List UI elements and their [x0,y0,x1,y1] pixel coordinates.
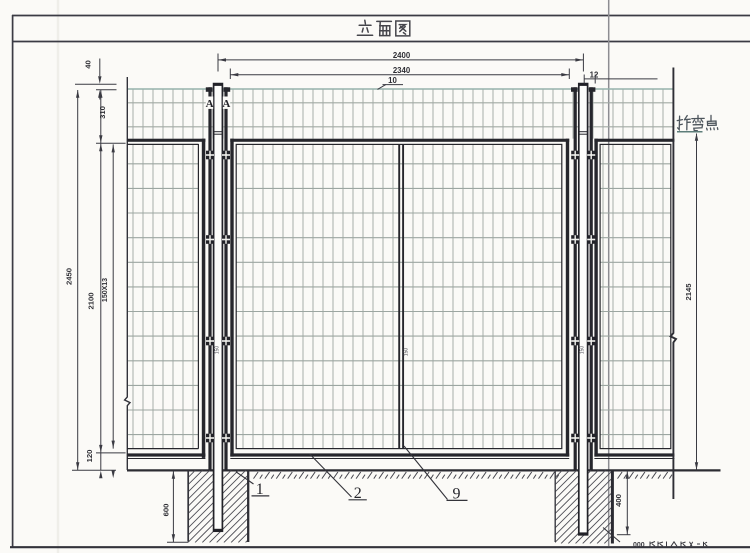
svg-text:150X13: 150X13 [102,278,109,302]
svg-text:2400: 2400 [393,51,411,60]
svg-text:400: 400 [614,494,623,507]
svg-text:150: 150 [214,346,220,355]
svg-text:600: 600 [162,504,171,517]
svg-text:2340: 2340 [393,66,411,75]
svg-text:150: 150 [580,346,586,355]
svg-text:2450: 2450 [65,268,74,285]
svg-text:2145: 2145 [684,283,693,301]
svg-text:10: 10 [388,76,397,85]
svg-text:A: A [206,98,214,110]
svg-text:150: 150 [404,348,410,357]
svg-text:40: 40 [84,60,93,69]
svg-text:120: 120 [85,450,94,463]
svg-text:12: 12 [590,71,599,80]
svg-text:000: 000 [633,542,645,549]
svg-text:2100: 2100 [87,292,96,309]
svg-text:310: 310 [98,106,107,119]
svg-text:A: A [222,98,230,110]
